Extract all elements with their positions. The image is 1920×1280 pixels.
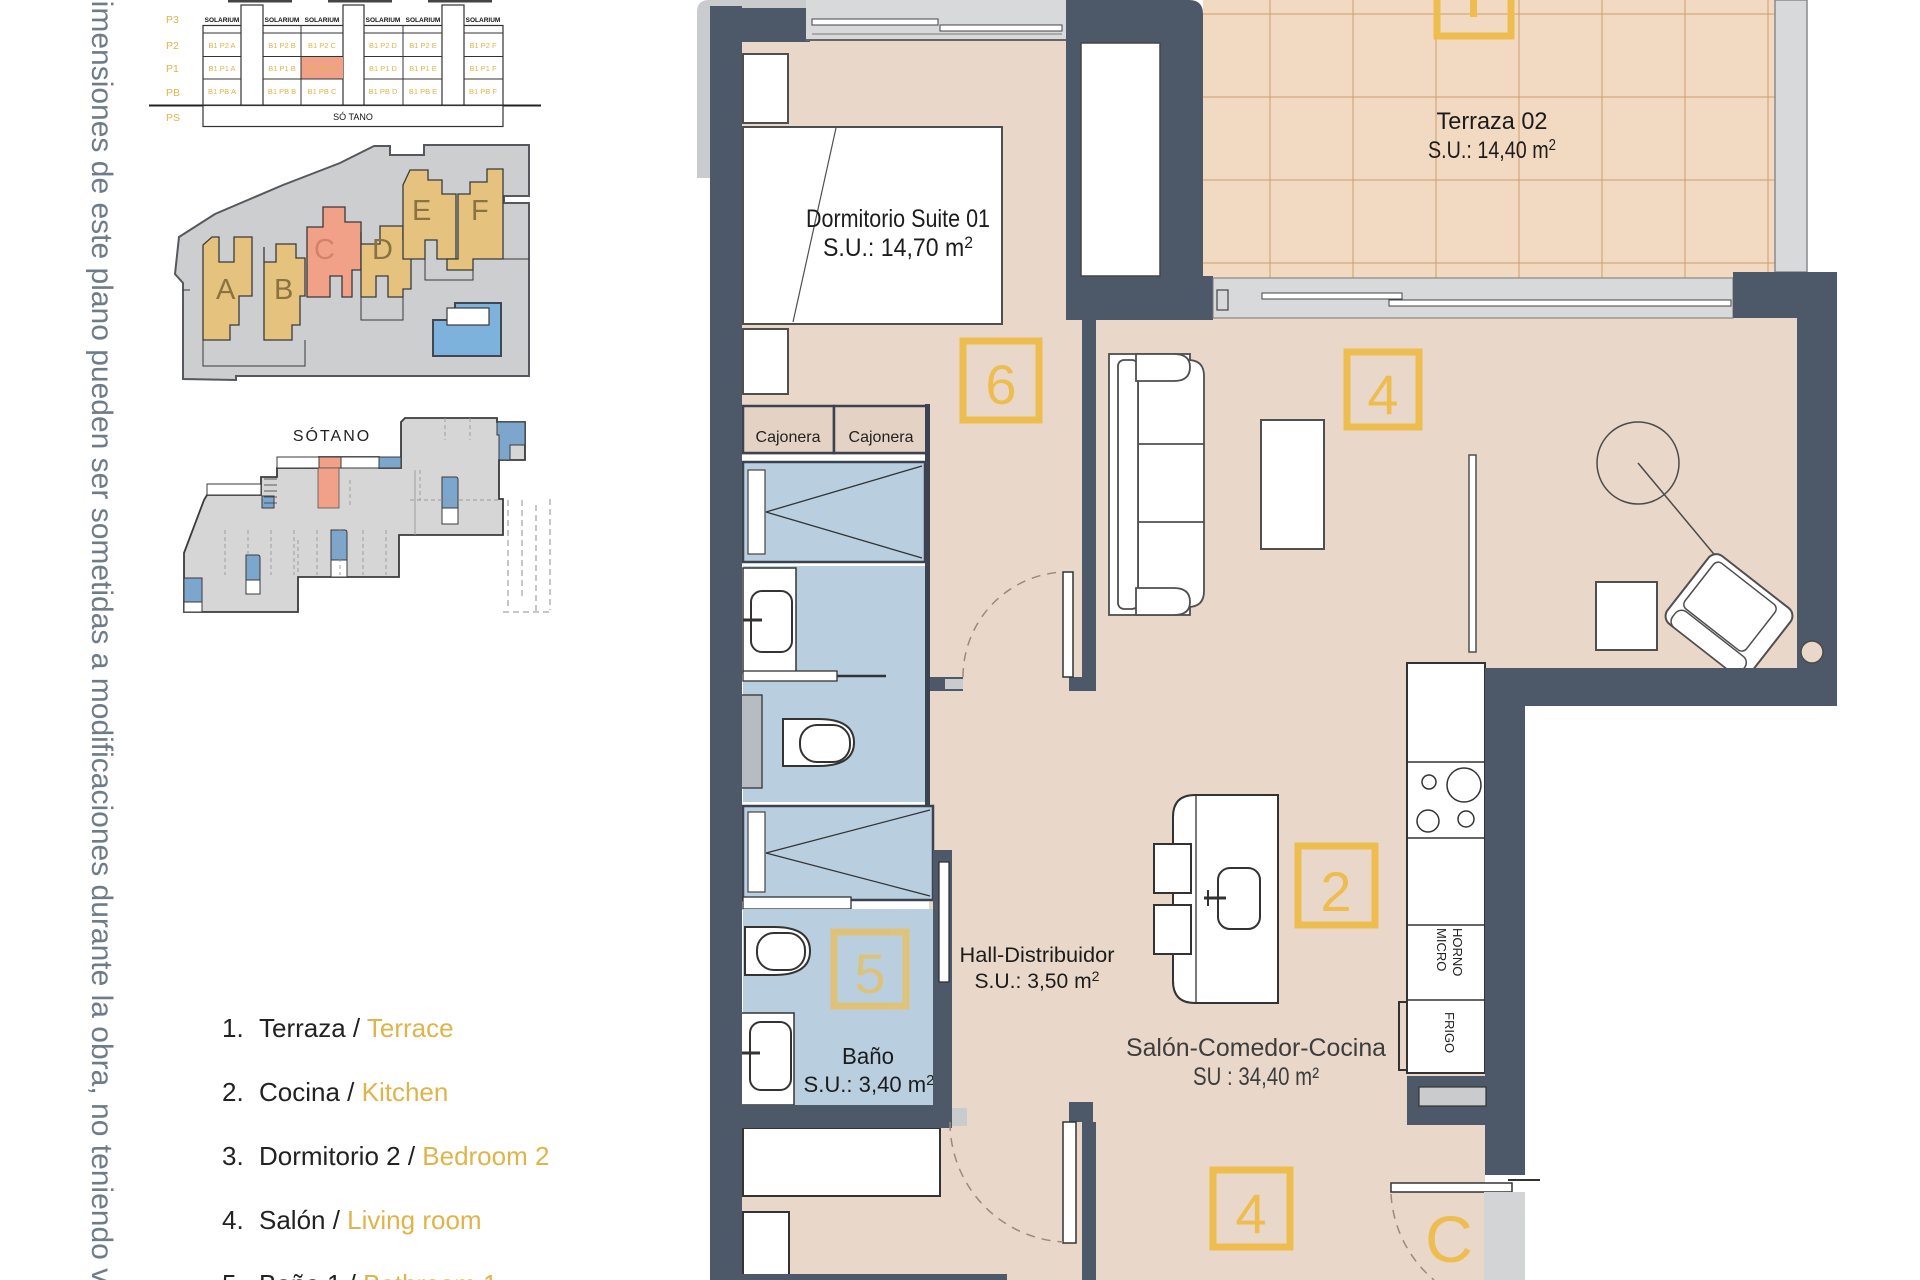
svg-text:SÓTANO: SÓTANO <box>293 426 371 445</box>
svg-text:HORNO: HORNO <box>1450 928 1465 976</box>
svg-text:B1 P2 E: B1 P2 E <box>409 41 437 50</box>
svg-text:B1 P1 B: B1 P1 B <box>268 64 296 73</box>
svg-text:SOLARIUM: SOLARIUM <box>466 17 501 24</box>
svg-text:D: D <box>372 234 393 266</box>
svg-text:6: 6 <box>985 353 1016 416</box>
svg-text:C: C <box>314 234 335 266</box>
svg-text:P2: P2 <box>166 40 179 52</box>
svg-text:B1 P2 D: B1 P2 D <box>369 41 398 50</box>
svg-text:Cajonera: Cajonera <box>756 429 821 446</box>
svg-text:B1 P1 C: B1 P1 C <box>308 64 337 73</box>
svg-text:Hall-Distribuidor: Hall-Distribuidor <box>960 944 1115 967</box>
svg-text:Cajonera: Cajonera <box>849 429 914 446</box>
svg-text:SU : 34,40 m²: SU : 34,40 m² <box>1193 1063 1319 1091</box>
svg-text:B1 P1 F: B1 P1 F <box>469 64 497 73</box>
svg-text:B1 P1 E: B1 P1 E <box>409 64 437 73</box>
svg-text:B1 P2 C: B1 P2 C <box>308 41 337 50</box>
svg-text:Salón / Living room: Salón / Living room <box>259 1205 482 1235</box>
svg-text:B1 PB F: B1 PB F <box>469 87 497 96</box>
svg-text:B1 P2 B: B1 P2 B <box>268 41 296 50</box>
svg-text:3.: 3. <box>222 1141 244 1171</box>
svg-text:2: 2 <box>1320 860 1351 923</box>
svg-text:PS: PS <box>166 112 180 124</box>
svg-text:Terraza 02: Terraza 02 <box>1437 108 1548 135</box>
svg-text:B1 PB D: B1 PB D <box>369 87 398 96</box>
svg-text:B1 PB A: B1 PB A <box>208 87 236 96</box>
svg-text:4.: 4. <box>222 1205 244 1235</box>
svg-text:Cocina / Kitchen: Cocina / Kitchen <box>259 1077 448 1107</box>
svg-text:B1 PB C: B1 PB C <box>308 87 337 96</box>
svg-text:B1 PB B: B1 PB B <box>268 87 296 96</box>
svg-text:5.: 5. <box>222 1269 244 1280</box>
svg-text:dimensiones de este plano pued: dimensiones de este plano pueden ser som… <box>85 0 118 1280</box>
svg-text:4: 4 <box>1367 363 1398 426</box>
svg-text:SOLARIUM: SOLARIUM <box>366 17 401 24</box>
svg-text:P3: P3 <box>166 14 179 26</box>
svg-text:B1 P1 D: B1 P1 D <box>369 64 398 73</box>
svg-text:Dormitorio Suite 01: Dormitorio Suite 01 <box>806 205 990 233</box>
svg-text:2.: 2. <box>222 1077 244 1107</box>
svg-text:5: 5 <box>854 942 885 1005</box>
svg-text:S.U.: 14,40 m2: S.U.: 14,40 m2 <box>1428 137 1556 164</box>
svg-text:SOLARIUM: SOLARIUM <box>205 17 240 24</box>
svg-text:E: E <box>412 195 431 227</box>
svg-text:SOLARIUM: SOLARIUM <box>265 17 300 24</box>
svg-text:SOLARIUM: SOLARIUM <box>305 17 340 24</box>
svg-text:Baño: Baño <box>842 1043 894 1069</box>
svg-text:B1 PB E: B1 PB E <box>409 87 437 96</box>
svg-text:4: 4 <box>1235 1182 1266 1245</box>
svg-text:Baño 1 / Bathroom 1: Baño 1 / Bathroom 1 <box>259 1269 497 1280</box>
svg-text:SOLARIUM: SOLARIUM <box>406 17 441 24</box>
svg-text:Salón-Comedor-Cocina: Salón-Comedor-Cocina <box>1126 1034 1386 1062</box>
svg-text:S.U.: 14,70 m2: S.U.: 14,70 m2 <box>823 233 973 262</box>
svg-text:S.U.: 3,40 m2: S.U.: 3,40 m2 <box>804 1072 935 1097</box>
svg-text:B1 P2 F: B1 P2 F <box>469 41 497 50</box>
svg-text:P1: P1 <box>166 63 179 75</box>
svg-text:B1 P2 A: B1 P2 A <box>208 41 235 50</box>
svg-text:F: F <box>471 195 489 227</box>
svg-text:C: C <box>1425 1202 1473 1276</box>
svg-text:B1 P1 A: B1 P1 A <box>208 64 235 73</box>
svg-text:MICRO: MICRO <box>1434 928 1449 971</box>
svg-text:FRIGO: FRIGO <box>1442 1012 1457 1053</box>
svg-text:Terraza / Terrace: Terraza / Terrace <box>259 1013 454 1043</box>
svg-text:SÓ TANO: SÓ TANO <box>333 112 373 122</box>
svg-text:A: A <box>216 274 236 306</box>
svg-text:Dormitorio 2 / Bedroom 2: Dormitorio 2 / Bedroom 2 <box>259 1141 549 1171</box>
svg-text:1.: 1. <box>222 1013 244 1043</box>
svg-text:PB: PB <box>166 87 180 99</box>
svg-text:B: B <box>274 274 293 306</box>
svg-text:S.U.: 3,50 m2: S.U.: 3,50 m2 <box>975 968 1100 993</box>
